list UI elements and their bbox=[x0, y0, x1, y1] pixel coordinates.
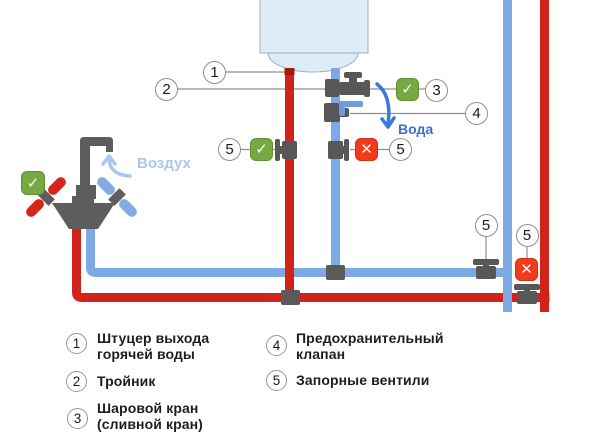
callout-5-cold-valve: 5 bbox=[389, 138, 412, 161]
callout-4-safety-valve: 4 bbox=[465, 102, 488, 125]
callout-lines bbox=[178, 72, 527, 262]
legend-item-4: Предохранительный клапан bbox=[296, 331, 444, 362]
shutoff-valve-hot-supply-closed bbox=[514, 284, 540, 304]
legend-item-4-line2: клапан bbox=[296, 347, 444, 363]
shutoff-valve-cold-supply bbox=[473, 259, 499, 279]
callout-2-tee: 2 bbox=[155, 78, 178, 101]
legend-item-2: Тройник bbox=[97, 374, 156, 390]
legend-item-3: Шаровой кран (сливной кран) bbox=[97, 401, 203, 432]
water-label: Вода bbox=[398, 122, 433, 136]
check-icon-faucet: ✓ bbox=[21, 171, 45, 195]
legend-num-5: 5 bbox=[266, 370, 287, 391]
x-icon-hot-supply-valve: ✕ bbox=[515, 258, 538, 281]
shutoff-valve-hot-open bbox=[275, 139, 297, 161]
legend-num-2: 2 bbox=[66, 371, 87, 392]
legend-item-5: Запорные вентили bbox=[296, 373, 429, 389]
boiler-piping-diagram: 1 2 3 4 5 5 5 5 ✓ ✓ ✓ ✕ ✕ Воздух Вода 1 … bbox=[0, 0, 600, 444]
legend-item-1-line2: горячей воды bbox=[97, 347, 209, 363]
legend-item-1: Штуцер выхода горячей воды bbox=[97, 331, 209, 362]
legend-item-4-line1: Предохранительный bbox=[296, 331, 444, 347]
legend-item-3-line1: Шаровой кран bbox=[97, 401, 203, 417]
legend-item-5-line1: Запорные вентили bbox=[296, 373, 429, 389]
cold-water-pipes bbox=[91, 68, 512, 277]
legend-item-3-line2: (сливной кран) bbox=[97, 417, 203, 433]
legend-num-1: 1 bbox=[66, 333, 87, 354]
shutoff-valve-cold-closed bbox=[328, 139, 349, 161]
legend-item-1-line1: Штуцер выхода bbox=[97, 331, 209, 347]
water-flow-arrow bbox=[377, 84, 394, 127]
callout-3-ball-valve: 3 bbox=[425, 79, 448, 102]
water-heater-boiler bbox=[260, 0, 368, 72]
legend-num-3: 3 bbox=[67, 408, 88, 429]
callout-5-cold-supply-valve: 5 bbox=[475, 214, 498, 237]
callout-5-hot-valve: 5 bbox=[218, 138, 241, 161]
air-label: Воздух bbox=[137, 156, 191, 171]
callout-1-hot-outlet: 1 bbox=[203, 61, 226, 84]
legend-num-4: 4 bbox=[266, 335, 287, 356]
callout-5-hot-supply-valve: 5 bbox=[516, 224, 539, 247]
check-icon-drain-valve: ✓ bbox=[396, 78, 419, 101]
x-icon-cold-valve: ✕ bbox=[355, 138, 378, 161]
hot-outlet-fitting bbox=[285, 68, 295, 75]
air-flow-arrow bbox=[103, 156, 130, 176]
check-icon-hot-valve: ✓ bbox=[250, 138, 273, 161]
legend-item-2-line1: Тройник bbox=[97, 374, 156, 390]
safety-valve bbox=[324, 101, 363, 122]
